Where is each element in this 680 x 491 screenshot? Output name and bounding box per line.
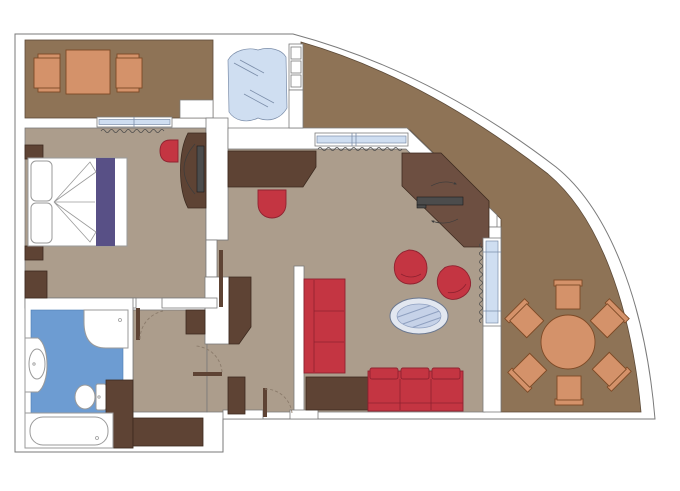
- mullion-2: [291, 61, 301, 73]
- bedroom-window-glass: [99, 120, 170, 125]
- wall-bedroom-east-upper: [206, 118, 228, 240]
- outdoor-armchair-left: [34, 54, 60, 92]
- open-door-leaf: [219, 250, 223, 307]
- corner-side-table: [306, 377, 368, 410]
- bed-runner: [96, 158, 115, 246]
- top-left-balcony: [34, 50, 142, 94]
- sofa-back-cushion-3: [432, 368, 460, 379]
- bedroom-stool: [160, 140, 178, 162]
- shower: [84, 310, 128, 348]
- living-tv-base: [417, 205, 426, 208]
- whirlpool-terrace: [228, 44, 303, 128]
- bathroom: [25, 310, 133, 448]
- pillow-top: [31, 161, 52, 201]
- mullion-1: [291, 47, 301, 59]
- dining-chair-s: [555, 376, 583, 405]
- desk-chair: [258, 190, 286, 218]
- coffee-table-glass: [397, 304, 441, 328]
- floor-plan-canvas: [0, 0, 680, 491]
- sink: [29, 349, 45, 379]
- wall-living-west: [294, 266, 304, 412]
- sofa-back-cushion-1: [370, 368, 398, 379]
- wall-entry-right: [290, 410, 318, 419]
- floor-plan-page: [0, 0, 680, 491]
- entry-door-leaf: [263, 388, 267, 417]
- mullion-wall: [289, 90, 303, 128]
- outdoor-square-table: [66, 50, 110, 94]
- wall-bedroom-east-lower: [206, 240, 217, 277]
- nightstand-top: [25, 145, 43, 159]
- sideboard-desk: [228, 151, 316, 187]
- toilet-bowl: [75, 385, 95, 409]
- bathroom-door-leaf: [193, 372, 222, 376]
- armchair-1: [394, 250, 427, 284]
- nightstand-bottom: [25, 246, 43, 260]
- hall-closet: [228, 377, 245, 414]
- bedroom-tv: [197, 146, 204, 192]
- wall-hallway: [205, 277, 229, 344]
- mullion-3: [291, 75, 301, 87]
- dining-chair-n: [554, 280, 582, 309]
- bedroom-door-leaf: [136, 308, 140, 340]
- bedroom-wardrobe: [25, 271, 47, 298]
- living-north-window-glass: [317, 136, 406, 143]
- balcony-service-notch: [180, 100, 213, 118]
- living-tv: [417, 197, 463, 205]
- sofa-vertical: [304, 279, 345, 373]
- minibar-cabinet: [186, 310, 205, 334]
- south-closet: [133, 418, 203, 446]
- bathtub: [30, 417, 108, 445]
- sofa-back-cushion-2: [401, 368, 429, 379]
- wall-bedroom-south-right: [162, 298, 217, 308]
- outdoor-armchair-right: [116, 54, 142, 92]
- whirlpool-tub: [228, 48, 287, 120]
- pillow-bottom: [31, 203, 52, 243]
- round-dining-table: [541, 315, 595, 369]
